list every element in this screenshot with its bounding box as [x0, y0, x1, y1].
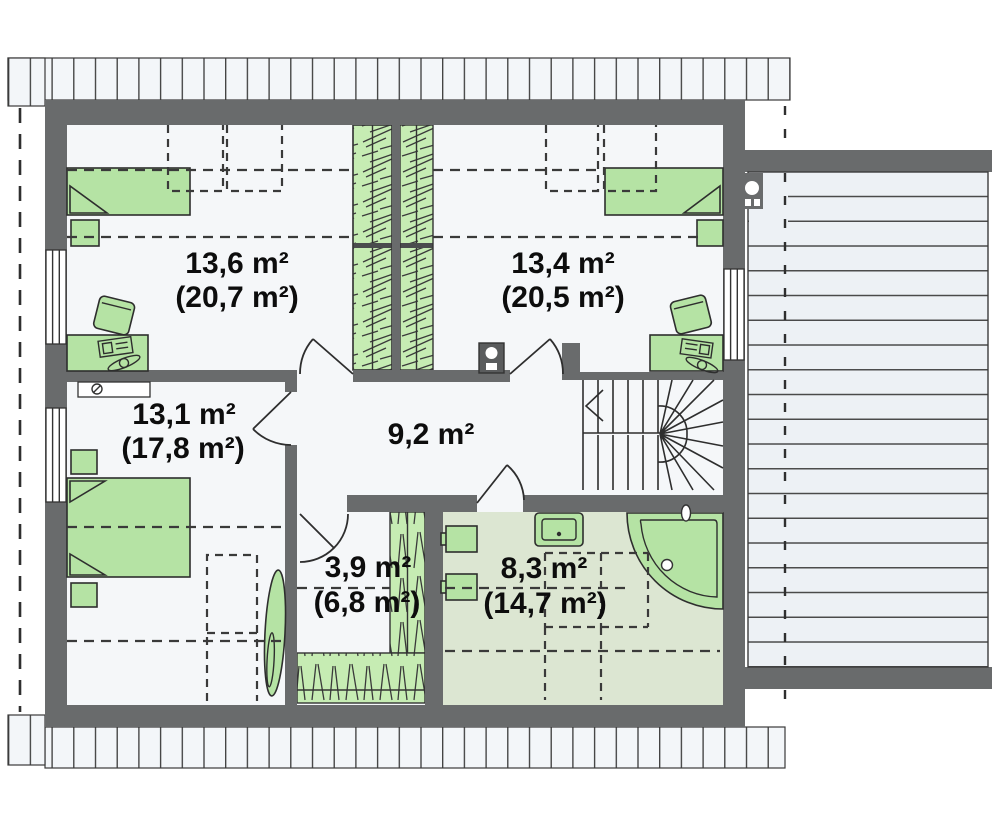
- terrace-wall-bottom: [745, 667, 992, 689]
- wardrobe-strip-room136: [353, 125, 392, 370]
- roof-eave-top: [8, 58, 790, 106]
- label-room131-area: 13,1 m²: [132, 398, 235, 431]
- label-bathroom-gross: (14,7 m²): [483, 587, 606, 620]
- window-left-1: [46, 250, 66, 344]
- bathroom-cabinet-1: [441, 526, 477, 552]
- terrace: [745, 106, 992, 710]
- desk-room134: [650, 335, 723, 376]
- window-left-2: [46, 408, 66, 502]
- chimney-icon-terrace: [741, 173, 763, 209]
- nightstand-room131-top: [71, 450, 97, 474]
- floor-plan: 13,6 m² (20,7 m²) 13,4 m² (20,5 m²) 13,1…: [0, 0, 1000, 822]
- label-bathroom-area: 8,3 m²: [501, 552, 588, 585]
- nightstand-room131-bottom: [71, 583, 97, 607]
- wardrobe-strip-dressing-bottom: [297, 653, 425, 703]
- desk-room136: [67, 335, 148, 374]
- label-room136-area: 13,6 m²: [185, 247, 288, 280]
- terrace-wall-top: [745, 150, 992, 172]
- label-room134-gross: (20,5 m²): [501, 281, 624, 314]
- wardrobe-strip-room134: [400, 125, 433, 370]
- nightstand-room134: [697, 220, 723, 246]
- nightstand-room136: [71, 220, 99, 246]
- window-right: [724, 269, 744, 360]
- washbasin: [535, 513, 583, 546]
- chimney-icon-hall: [479, 343, 504, 373]
- bed-room136: [67, 168, 190, 215]
- label-room131-gross: (17,8 m²): [121, 432, 244, 465]
- radiator-niche: [78, 382, 150, 397]
- label-dressing-gross: (6,8 m²): [314, 586, 421, 619]
- label-dressing-area: 3,9 m²: [325, 551, 412, 584]
- floor-plan-drawing: 13,6 m² (20,7 m²) 13,4 m² (20,5 m²) 13,1…: [0, 0, 1000, 822]
- label-hall-area: 9,2 m²: [388, 418, 475, 451]
- label-room134-area: 13,4 m²: [511, 247, 614, 280]
- label-room136-gross: (20,7 m²): [175, 281, 298, 314]
